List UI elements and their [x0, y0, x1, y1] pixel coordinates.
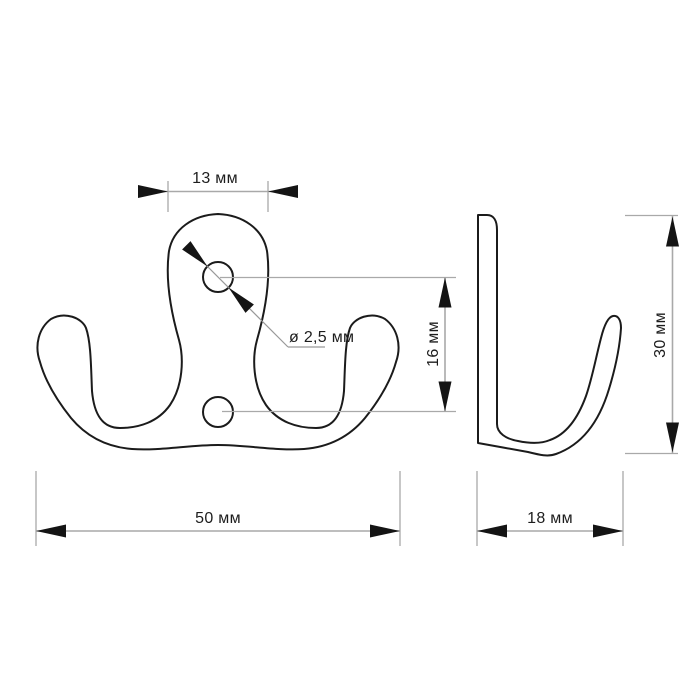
- dim-label-hole-spacing: 16 мм: [425, 321, 442, 367]
- arrowhead-down-icon: [666, 423, 679, 453]
- dim-label-overall-width: 50 мм: [195, 510, 241, 527]
- arrowhead-up-icon: [666, 217, 679, 247]
- technical-drawing-canvas: 13 мм ø 2,5 мм 16 мм 50 мм: [0, 0, 700, 700]
- dim-label-side-height: 30 мм: [652, 312, 669, 358]
- side-view: [478, 215, 621, 455]
- arrowhead-right-icon: [138, 185, 168, 198]
- dim-side-height: 30 мм: [625, 216, 679, 454]
- arrowhead-left-icon: [477, 525, 507, 538]
- dim-label-plate-top-width: 13 мм: [192, 170, 238, 187]
- arrowhead-left-icon: [36, 525, 66, 538]
- arrowhead-down-icon: [439, 382, 452, 412]
- dim-label-hole-diameter: ø 2,5 мм: [289, 329, 354, 346]
- dim-overall-width: 50 мм: [36, 471, 400, 546]
- dim-side-depth: 18 мм: [477, 471, 623, 546]
- dim-plate-top-width: 13 мм: [138, 170, 298, 212]
- hook-dimension-drawing: 13 мм ø 2,5 мм 16 мм 50 мм: [0, 0, 700, 700]
- arrowhead-right-icon: [593, 525, 623, 538]
- arrowhead-up-icon: [439, 278, 452, 308]
- dim-label-side-depth: 18 мм: [527, 510, 573, 527]
- side-view-outline: [478, 215, 621, 455]
- arrowhead-right-icon: [370, 525, 400, 538]
- arrowhead-left-icon: [268, 185, 298, 198]
